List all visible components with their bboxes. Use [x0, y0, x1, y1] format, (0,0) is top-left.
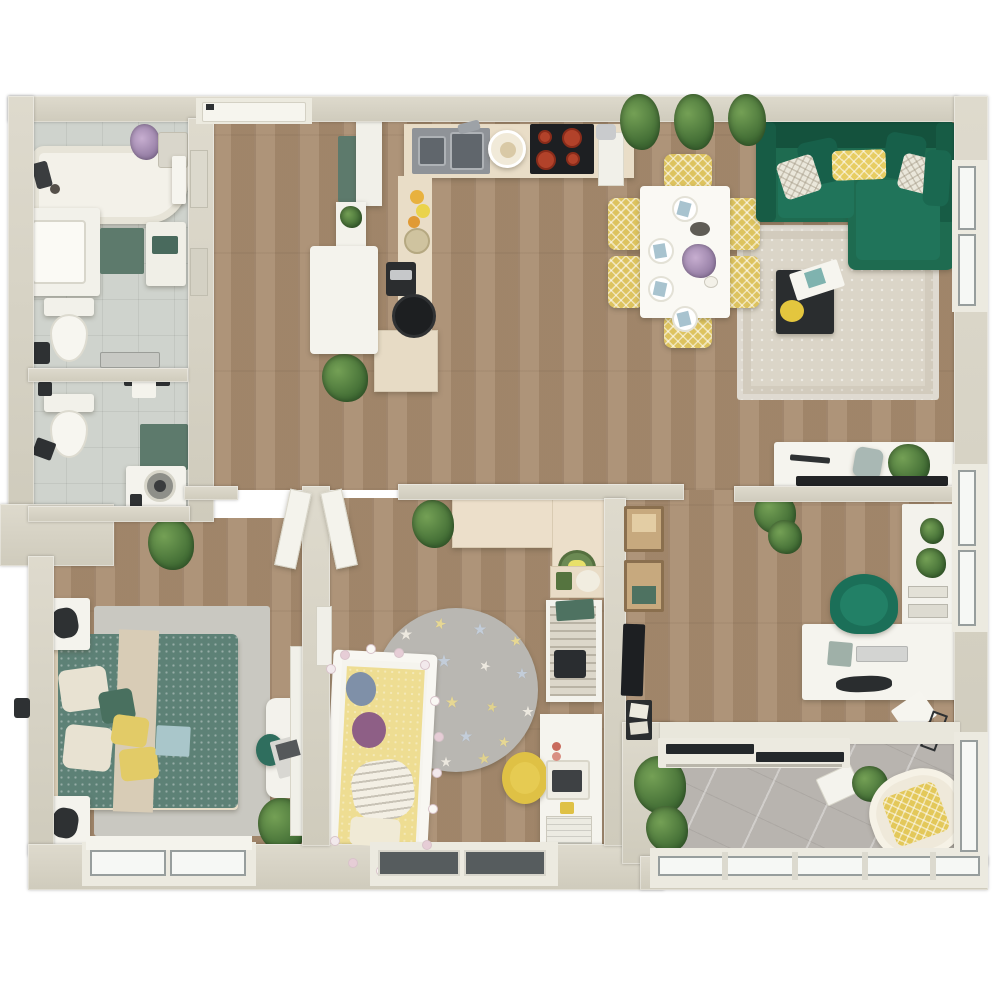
star-decor: ★ [475, 750, 493, 768]
console-tray [796, 476, 948, 486]
wall-tv [621, 624, 645, 697]
crib-plush-toy [352, 712, 386, 748]
office-floor-plant [768, 520, 802, 554]
bed-pillow-yellow [110, 714, 150, 749]
star-decor: ★ [444, 694, 460, 710]
pouf-seat [510, 762, 540, 794]
entry-shelf-plant [340, 206, 362, 228]
sink-basin [450, 132, 484, 170]
table-flowers-yellow [780, 300, 804, 322]
wc-mat [140, 424, 188, 470]
window-mullion [792, 852, 798, 880]
entry-door [202, 102, 306, 122]
window-pane [958, 550, 976, 626]
balcony-plant [646, 806, 688, 852]
bed-pillow-white [62, 724, 114, 773]
hall-wall-frame [190, 248, 208, 296]
stove-burner [536, 150, 556, 170]
window-pane [170, 850, 246, 876]
window-pane [464, 850, 546, 876]
lemon [410, 190, 424, 204]
desk-toy-yellow [560, 802, 574, 814]
string-light [366, 644, 376, 654]
wall-corridor-stub [184, 486, 238, 500]
window-pane [378, 850, 460, 876]
star-decor: ★ [458, 728, 474, 744]
kitchen-jar [404, 228, 430, 254]
wall-top [8, 96, 958, 122]
string-light [326, 664, 336, 674]
dining-chair [608, 256, 644, 308]
balcony-slider-glass [666, 744, 754, 754]
vanity-basin [32, 220, 86, 284]
window-mullion [862, 852, 868, 880]
desk-knob-red [552, 752, 561, 761]
bed-pillow-yellow [118, 746, 159, 782]
cooking-pot [392, 294, 436, 338]
hanging-plant [674, 94, 714, 150]
sofa-pillow-green [922, 149, 952, 207]
kettle [596, 124, 616, 140]
window-pane [90, 850, 166, 876]
balcony-slider-glass [756, 752, 844, 762]
wall-sconce [14, 698, 30, 718]
green-towels [152, 236, 178, 254]
string-light [422, 840, 432, 850]
stove-burner [538, 130, 552, 144]
kitchen-lower-cabinet [374, 330, 438, 392]
star-decor: ★ [507, 632, 526, 651]
desk-paper-stack [546, 816, 592, 844]
star-decor: ★ [495, 733, 514, 752]
window-pane [960, 740, 978, 852]
tablet [554, 650, 586, 678]
lemon [416, 204, 430, 218]
string-light [394, 648, 404, 658]
keyboard [856, 646, 908, 662]
window-pane [958, 166, 976, 230]
dining-chair [664, 154, 712, 190]
entry-door-hinge [206, 104, 214, 110]
string-light [432, 768, 442, 778]
window-pane [958, 470, 976, 546]
wall-left [8, 96, 34, 520]
lemon [408, 216, 420, 228]
lavender-decor [130, 124, 160, 160]
star-decor: ★ [520, 704, 536, 720]
star-decor: ★ [514, 666, 530, 682]
napkin [653, 243, 667, 259]
nursery-floor-plant [412, 500, 454, 548]
wall-wc-bottom [28, 506, 190, 522]
bedroom-floor-plant [148, 518, 194, 570]
stove-burner [562, 128, 582, 148]
wall-bath-divider [28, 368, 188, 382]
entry-tall-cabinet [356, 116, 382, 206]
string-light [340, 650, 350, 660]
hanging-plant [728, 94, 766, 146]
sink-basin [418, 136, 446, 166]
wc-paper-holder [38, 382, 52, 396]
floor-plan: 3D apartment floor plan, top view ★★★★★★… [0, 0, 1000, 1000]
bedroom-window-sill [86, 836, 252, 850]
string-light [428, 804, 438, 814]
nursery-wall-frames [316, 606, 332, 666]
kitchen-plate-center [500, 142, 516, 158]
coffee-machine-trim [390, 270, 412, 280]
shelf-books [908, 586, 948, 598]
hanging-plant [620, 94, 660, 150]
kitchen-end-cabinet [598, 132, 624, 186]
cactus [916, 548, 946, 578]
star-decor: ★ [472, 621, 488, 637]
string-light [348, 858, 358, 868]
desk-knob-red [552, 742, 561, 751]
toilet-brush [32, 342, 50, 364]
serving-bowl [690, 222, 710, 236]
shelf-toy-green [556, 572, 572, 590]
washer-drum-center [154, 480, 166, 492]
star-decor: ★ [398, 626, 414, 642]
balcony-slider-track [666, 764, 842, 767]
desk-pad [827, 641, 853, 667]
hall-wall-frame [190, 150, 208, 208]
office-chair-cushion [840, 584, 888, 626]
shelf-books [908, 604, 948, 618]
cactus [920, 518, 944, 544]
wall-bedroom-left [28, 556, 54, 856]
stove-burner [566, 152, 580, 166]
window-pane [958, 234, 976, 306]
towel-shelf [100, 352, 160, 368]
box-shelf-items [632, 586, 656, 604]
fridge [310, 246, 378, 354]
window-mullion [930, 852, 936, 880]
typewriter-keys [552, 770, 582, 792]
media-shelf-books [629, 721, 648, 735]
string-light [420, 660, 430, 670]
dining-chair [608, 198, 644, 250]
star-decor: ★ [436, 654, 452, 670]
book-on-bed [155, 725, 191, 757]
bath-mat [100, 228, 144, 274]
hall-floor-plant [322, 354, 368, 402]
wall-nursery-top [398, 484, 684, 500]
bath-side-cabinet [146, 222, 186, 286]
shelf-toy-pillow [576, 570, 600, 592]
changing-cloth-green [555, 599, 594, 622]
string-light [430, 696, 440, 706]
string-light [330, 836, 340, 846]
string-light [434, 732, 444, 742]
media-shelf-books [629, 703, 649, 719]
centerpiece-flowers [682, 244, 716, 278]
star-decor: ★ [438, 754, 454, 770]
window-mullion [722, 852, 728, 880]
wall-office-top [734, 486, 958, 502]
nursery-console [452, 496, 556, 548]
towel-on-rail [172, 156, 186, 204]
box-shelf-items [632, 514, 656, 532]
table-cup [704, 276, 718, 288]
sofa-pillow-yellow [831, 149, 886, 181]
